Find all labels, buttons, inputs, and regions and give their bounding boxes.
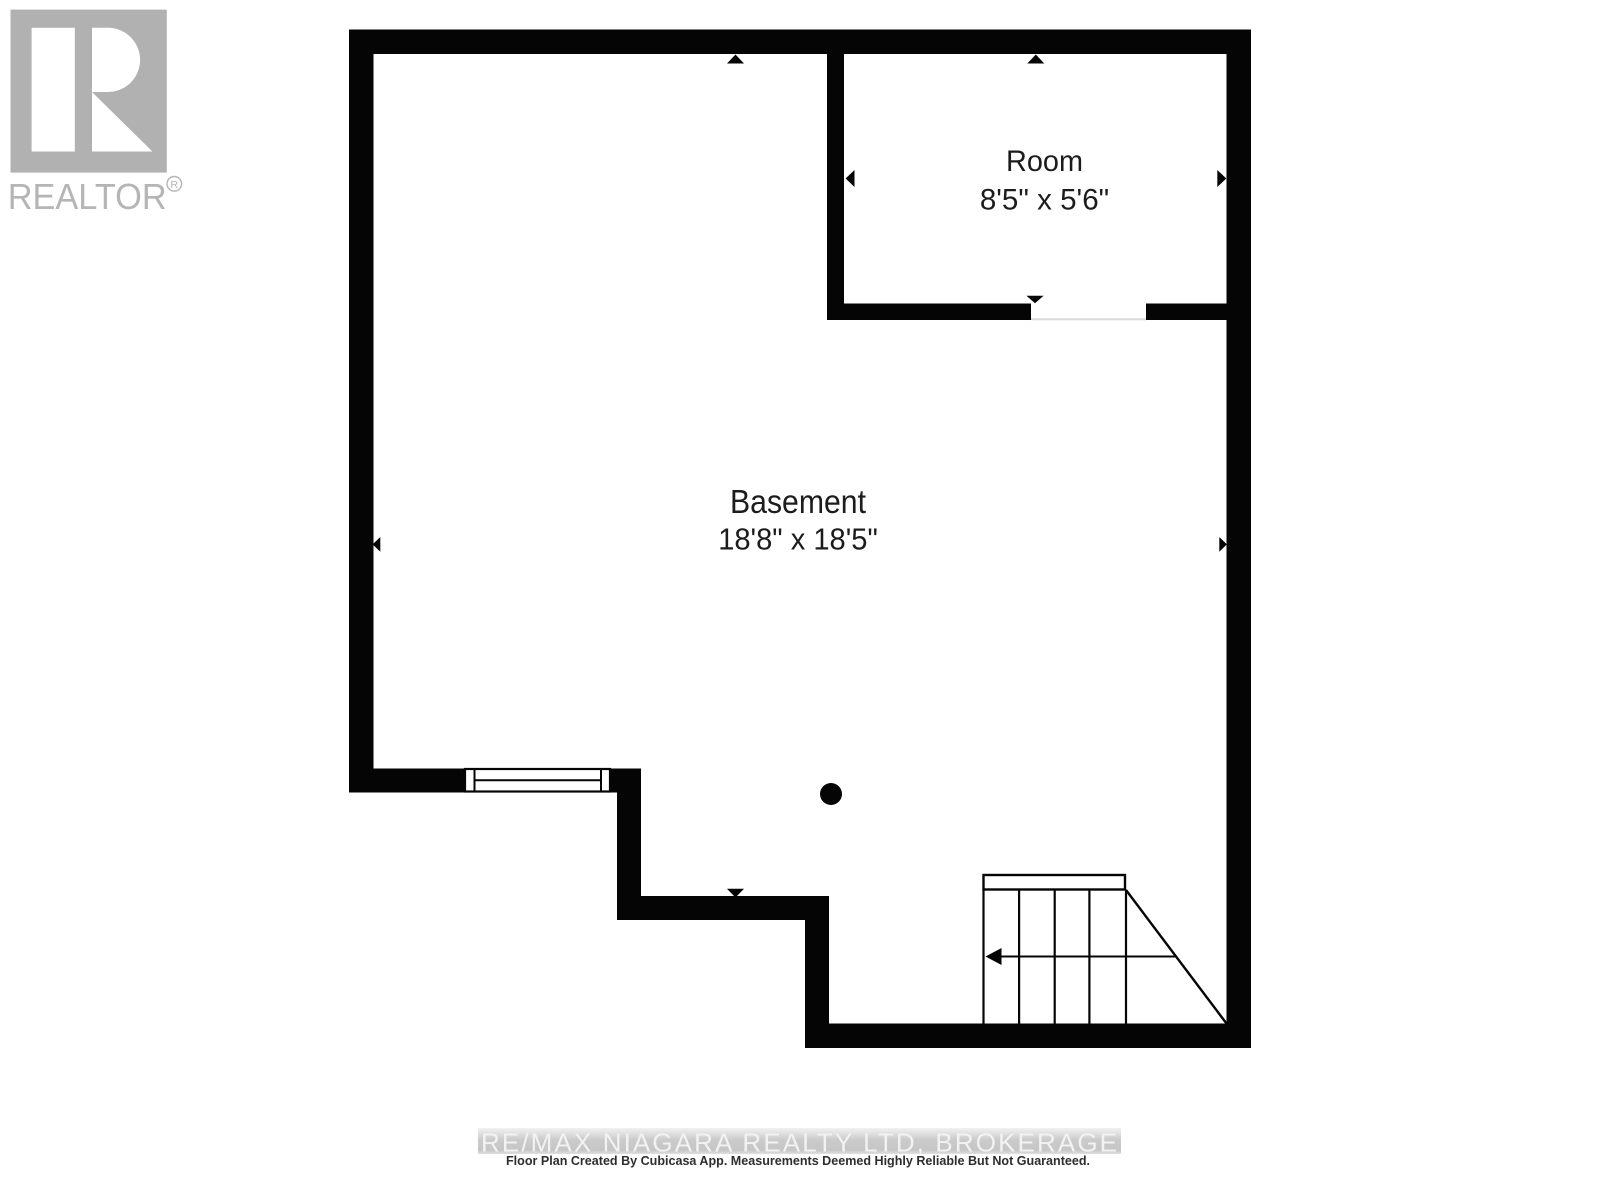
svg-text:Room: Room <box>1006 145 1083 178</box>
svg-text:18'8" x 18'5": 18'8" x 18'5" <box>718 522 878 557</box>
svg-text:Basement: Basement <box>730 483 866 520</box>
svg-text:8'5" x 5'6": 8'5" x 5'6" <box>980 184 1109 217</box>
svg-text:R: R <box>171 179 179 191</box>
svg-text:REALTOR: REALTOR <box>8 176 167 217</box>
svg-text:Floor Plan Created By Cubicasa: Floor Plan Created By Cubicasa App. Meas… <box>506 1153 1090 1168</box>
